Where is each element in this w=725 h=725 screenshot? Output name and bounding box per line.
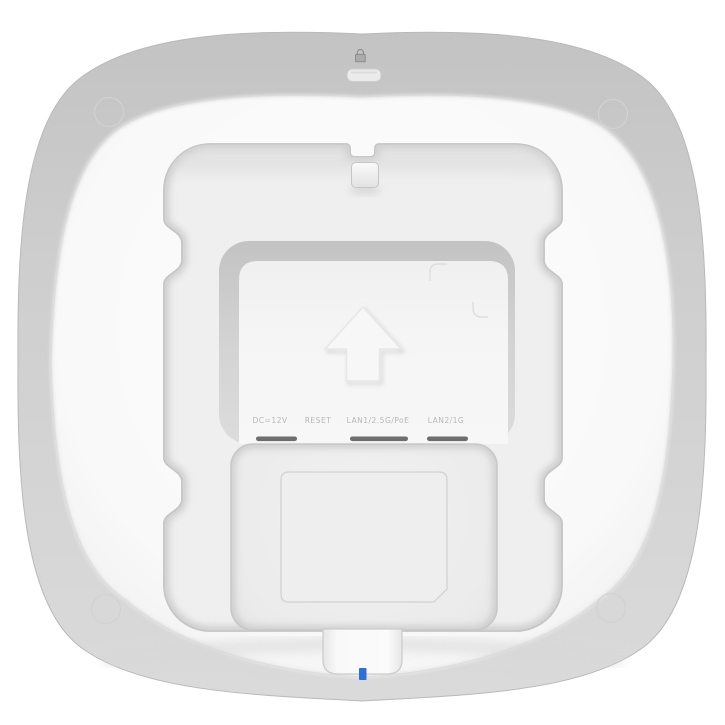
bottom-tab bbox=[323, 629, 402, 674]
status-led bbox=[359, 668, 367, 680]
port-label-lan2: LAN2/1G bbox=[428, 416, 465, 425]
port-slot-lan2 bbox=[427, 437, 468, 442]
port-label-lan1: LAN1/2.5G/PoE bbox=[347, 416, 410, 425]
photo-canvas: DC=12V RESET LAN1/2.5G/PoE LAN2/1G bbox=[0, 0, 725, 725]
label-sticker-area bbox=[281, 472, 447, 602]
access-point-rear-photo: DC=12V RESET LAN1/2.5G/PoE LAN2/1G bbox=[0, 0, 725, 725]
latch-clip bbox=[352, 163, 379, 188]
port-slot-dc bbox=[256, 437, 297, 442]
latch-release-slot bbox=[347, 69, 381, 82]
port-label-dc: DC=12V bbox=[252, 416, 287, 425]
port-label-reset: RESET bbox=[305, 416, 332, 425]
port-slot-lan1 bbox=[350, 437, 408, 442]
